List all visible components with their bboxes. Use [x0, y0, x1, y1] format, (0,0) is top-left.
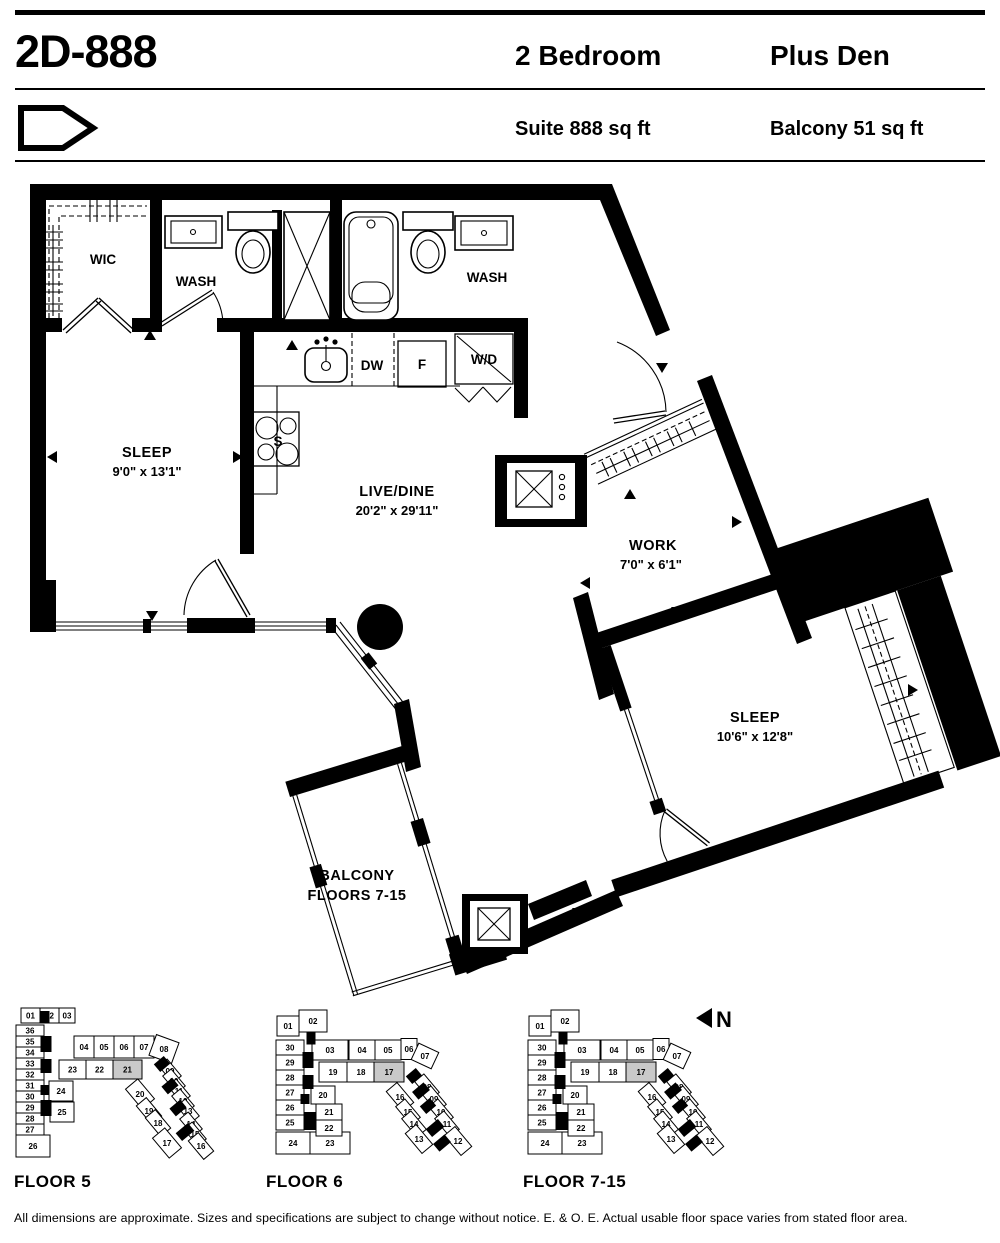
wash1-label: WASH: [176, 274, 217, 289]
balcony-floors-label: FLOORS 7-15: [308, 888, 407, 904]
keyplan-core-icon: [553, 1094, 562, 1104]
keyplan-core-icon: [557, 1112, 568, 1130]
keyplan-unit-cell: 17: [374, 1062, 404, 1082]
keyplan-unit-cell: 26: [276, 1100, 304, 1115]
keyplan-unit-cell: 36: [16, 1025, 44, 1036]
svg-text:13: 13: [415, 1135, 424, 1144]
shaft-box-2: [462, 894, 528, 954]
svg-text:04: 04: [610, 1046, 619, 1055]
svg-text:22: 22: [325, 1124, 334, 1133]
svg-text:04: 04: [80, 1043, 89, 1052]
keyplan-unit-cell: 26: [528, 1100, 556, 1115]
dw-label: DW: [361, 358, 384, 373]
keyplan-unit-cell: 28: [528, 1070, 556, 1085]
svg-text:11: 11: [443, 1120, 452, 1129]
keyplan-unit-cell: 04: [601, 1040, 627, 1060]
keyplan-unit-cell: 01: [21, 1008, 40, 1023]
keyplan-unit-cell: 02: [551, 1010, 579, 1032]
keyplan-unit-cell: 30: [276, 1040, 304, 1055]
svg-text:25: 25: [286, 1118, 295, 1127]
keyplan-unit-cell: 04: [349, 1040, 375, 1060]
svg-text:18: 18: [357, 1068, 366, 1077]
svg-text:12: 12: [454, 1137, 463, 1146]
svg-text:21: 21: [123, 1065, 132, 1074]
svg-text:29: 29: [538, 1058, 547, 1067]
svg-text:26: 26: [29, 1142, 38, 1151]
keyplan-core-icon: [555, 1052, 566, 1068]
keyplan-unit-cell: 21: [316, 1104, 342, 1120]
keyplan-unit-cell: 24: [276, 1132, 310, 1154]
unit-number: 2D-888: [15, 26, 157, 78]
north-label: N: [716, 1007, 732, 1032]
keyplan-unit-cell: 25: [276, 1115, 304, 1130]
keyplan-core-icon: [41, 1085, 50, 1095]
svg-text:04: 04: [358, 1046, 367, 1055]
svg-text:35: 35: [26, 1037, 35, 1046]
svg-text:07: 07: [421, 1052, 430, 1061]
keyplan-unit-cell: 27: [276, 1085, 304, 1100]
keyplan-unit-cell: 27: [16, 1124, 44, 1135]
keyplan-unit-cell: 05: [627, 1040, 653, 1060]
keyplan-unit-cell: 21: [568, 1104, 594, 1120]
svg-text:28: 28: [538, 1073, 547, 1082]
svg-text:23: 23: [326, 1139, 335, 1148]
keyplan-unit-cell: 18: [347, 1062, 375, 1082]
svg-text:29: 29: [26, 1103, 35, 1112]
keyplan-unit-cell: 03: [59, 1008, 75, 1023]
keyplan-unit-cell: 23: [59, 1060, 86, 1079]
stove-label: S: [273, 434, 282, 449]
keyplan-unit-cell: 03: [312, 1040, 348, 1060]
suite-area: Suite 888 sq ft: [515, 118, 651, 141]
svg-text:18: 18: [609, 1068, 618, 1077]
keyplan-unit-cell: 25: [528, 1115, 556, 1130]
keyplan-unit-cell: 19: [571, 1062, 599, 1082]
keyplan-core-icon: [41, 1036, 52, 1052]
floor6-label: FLOOR 6: [266, 1172, 343, 1192]
keyplan-unit-cell: 29: [16, 1102, 44, 1113]
sleep2-dims: 10'6" x 12'8": [717, 729, 793, 744]
keyplan-unit-cell: 01: [529, 1016, 551, 1036]
work-label: WORK: [629, 538, 677, 554]
top-rule: [15, 10, 985, 15]
svg-text:24: 24: [57, 1087, 66, 1096]
keyplan-unit-cell: 30: [528, 1040, 556, 1055]
keyplan-floor-6: 0102302928272625242303040506071918172021…: [264, 1002, 514, 1172]
svg-text:06: 06: [405, 1045, 414, 1054]
keyplan-unit-cell: 22: [86, 1060, 113, 1079]
svg-text:03: 03: [578, 1046, 587, 1055]
svg-text:28: 28: [286, 1073, 295, 1082]
keyplan-unit-cell: 17: [626, 1062, 656, 1082]
keyplan-unit-cell: 22: [568, 1120, 594, 1136]
svg-text:27: 27: [538, 1088, 547, 1097]
keyplan-unit-cell: 03: [564, 1040, 600, 1060]
svg-text:11: 11: [695, 1120, 704, 1129]
svg-text:17: 17: [163, 1139, 172, 1148]
svg-text:01: 01: [536, 1022, 545, 1031]
keyplan-core-icon: [41, 1059, 52, 1073]
keyplan-unit-cell: 20: [563, 1086, 587, 1104]
svg-text:25: 25: [58, 1108, 67, 1117]
keyplan-unit-cell: 30: [16, 1091, 44, 1102]
unit-type-den: Plus Den: [770, 40, 890, 72]
keyplan-unit-cell: 20: [311, 1086, 335, 1104]
balcony-area: Balcony 51 sq ft: [770, 118, 923, 141]
keyplan-unit-cell: 05: [375, 1040, 401, 1060]
bathroom2-fixtures: [344, 212, 513, 320]
window-band: [50, 622, 406, 712]
keyplan-unit-cell: 19: [319, 1062, 347, 1082]
svg-text:32: 32: [26, 1070, 35, 1079]
keyplan-unit-cell: 25: [50, 1102, 74, 1122]
svg-text:26: 26: [538, 1103, 547, 1112]
svg-text:33: 33: [26, 1059, 35, 1068]
keyplan-floor-5: 0102033635343332313029282726040506070823…: [12, 1002, 262, 1172]
svg-text:06: 06: [120, 1043, 129, 1052]
unit-type-bedrooms: 2 Bedroom: [515, 40, 661, 72]
keyplan-core-icon: [307, 1032, 316, 1045]
keyplan-unit-cell: 31: [16, 1080, 44, 1091]
svg-text:16: 16: [197, 1142, 206, 1151]
fridge-label: F: [418, 357, 426, 372]
den-closet: [584, 399, 716, 484]
svg-text:30: 30: [26, 1092, 35, 1101]
livedine-dims: 20'2" x 29'11": [356, 503, 439, 518]
floorplan-drawing: WIC WASH WASH DW F W/D S SLEEP 9'0" x 13…: [0, 170, 1000, 1010]
keyplan-core-icon: [41, 1100, 52, 1116]
keyplan-unit-cell: 34: [16, 1047, 44, 1058]
lower-rule: [15, 160, 985, 162]
svg-text:23: 23: [578, 1139, 587, 1148]
keyplan-unit-cell: 29: [528, 1055, 556, 1070]
svg-text:18: 18: [154, 1119, 163, 1128]
unit-marker-icon: [17, 104, 99, 152]
svg-text:30: 30: [538, 1043, 547, 1052]
shaft-box-1: [495, 455, 587, 527]
svg-text:17: 17: [385, 1068, 394, 1077]
svg-text:01: 01: [26, 1011, 35, 1020]
keyplan-unit-cell: 21: [113, 1060, 142, 1079]
mid-rule: [15, 88, 985, 90]
keyplan-unit-cell: 28: [16, 1113, 44, 1124]
svg-text:20: 20: [571, 1091, 580, 1100]
floorplan-sheet: { "header": { "title": "2D-888", "type_l…: [0, 0, 1000, 1243]
svg-text:24: 24: [541, 1139, 550, 1148]
svg-text:05: 05: [636, 1046, 645, 1055]
keyplan-unit-cell: 05: [94, 1036, 114, 1058]
svg-text:01: 01: [284, 1022, 293, 1031]
sleep2-label: SLEEP: [730, 710, 780, 726]
floor5-label: FLOOR 5: [14, 1172, 91, 1192]
svg-text:34: 34: [26, 1048, 35, 1057]
svg-text:30: 30: [286, 1043, 295, 1052]
svg-text:06: 06: [657, 1045, 666, 1054]
svg-text:21: 21: [577, 1108, 586, 1117]
keyplan-core-icon: [559, 1032, 568, 1045]
svg-text:07: 07: [140, 1043, 149, 1052]
svg-text:31: 31: [26, 1081, 35, 1090]
svg-text:19: 19: [581, 1068, 590, 1077]
svg-text:36: 36: [26, 1026, 35, 1035]
keyplan-unit-cell: 24: [528, 1132, 562, 1154]
keyplan-core-icon: [305, 1112, 316, 1130]
svg-text:23: 23: [68, 1065, 77, 1074]
structural-column: [357, 604, 403, 650]
keyplan-unit-cell: 35: [16, 1036, 44, 1047]
keyplan-core-icon: [41, 1011, 50, 1023]
keyplan-unit-cell: 02: [299, 1010, 327, 1032]
keyplan-unit-cell: 32: [16, 1069, 44, 1080]
keyplan-unit-cell: 01: [277, 1016, 299, 1036]
keyplan-unit-cell: 29: [276, 1055, 304, 1070]
balcony-label: BALCONY: [319, 868, 394, 884]
keyplan-core-icon: [555, 1075, 566, 1089]
svg-text:03: 03: [63, 1011, 72, 1020]
svg-text:12: 12: [706, 1137, 715, 1146]
keyplan-core-icon: [301, 1094, 310, 1104]
keyplan-core-icon: [303, 1052, 314, 1068]
balcony-block: [283, 735, 507, 1007]
svg-text:27: 27: [286, 1088, 295, 1097]
wic-label: WIC: [90, 252, 116, 267]
svg-text:08: 08: [160, 1045, 169, 1054]
wd-label: W/D: [471, 352, 497, 367]
svg-text:13: 13: [667, 1135, 676, 1144]
keyplan-unit-cell: 04: [74, 1036, 94, 1058]
keyplan-unit-cell: 18: [599, 1062, 627, 1082]
keyplan-unit-cell: 06: [114, 1036, 134, 1058]
svg-text:20: 20: [136, 1090, 145, 1099]
svg-text:02: 02: [561, 1017, 570, 1026]
svg-text:20: 20: [319, 1091, 328, 1100]
svg-text:19: 19: [329, 1068, 338, 1077]
svg-text:28: 28: [26, 1114, 35, 1123]
floor7-15-label: FLOOR 7-15: [523, 1172, 626, 1192]
sleep1-label: SLEEP: [122, 445, 172, 461]
livedine-label: LIVE/DINE: [359, 484, 434, 500]
svg-text:17: 17: [637, 1068, 646, 1077]
svg-text:02: 02: [309, 1017, 318, 1026]
svg-text:03: 03: [326, 1046, 335, 1055]
keyplan-unit-cell: 22: [316, 1120, 342, 1136]
keyplan-unit-cell: 28: [276, 1070, 304, 1085]
svg-text:24: 24: [289, 1139, 298, 1148]
keyplan-unit-cell: 26: [16, 1135, 50, 1157]
work-dims: 7'0" x 6'1": [620, 557, 682, 572]
svg-text:25: 25: [538, 1118, 547, 1127]
svg-text:05: 05: [384, 1046, 393, 1055]
svg-text:22: 22: [577, 1124, 586, 1133]
svg-text:21: 21: [325, 1108, 334, 1117]
svg-text:22: 22: [95, 1065, 104, 1074]
sleep1-dims: 9'0" x 13'1": [112, 464, 181, 479]
svg-text:29: 29: [286, 1058, 295, 1067]
keyplan-unit-cell: 24: [49, 1081, 73, 1101]
svg-text:07: 07: [673, 1052, 682, 1061]
svg-text:27: 27: [26, 1125, 35, 1134]
svg-text:05: 05: [100, 1043, 109, 1052]
wash2-label: WASH: [467, 270, 508, 285]
north-arrow-icon: N: [694, 1004, 754, 1034]
svg-text:26: 26: [286, 1103, 295, 1112]
keyplan-unit-cell: 27: [528, 1085, 556, 1100]
disclaimer-text: All dimensions are approximate. Sizes an…: [14, 1211, 908, 1225]
keyplan-unit-cell: 33: [16, 1058, 44, 1069]
keyplan-core-icon: [303, 1075, 314, 1089]
